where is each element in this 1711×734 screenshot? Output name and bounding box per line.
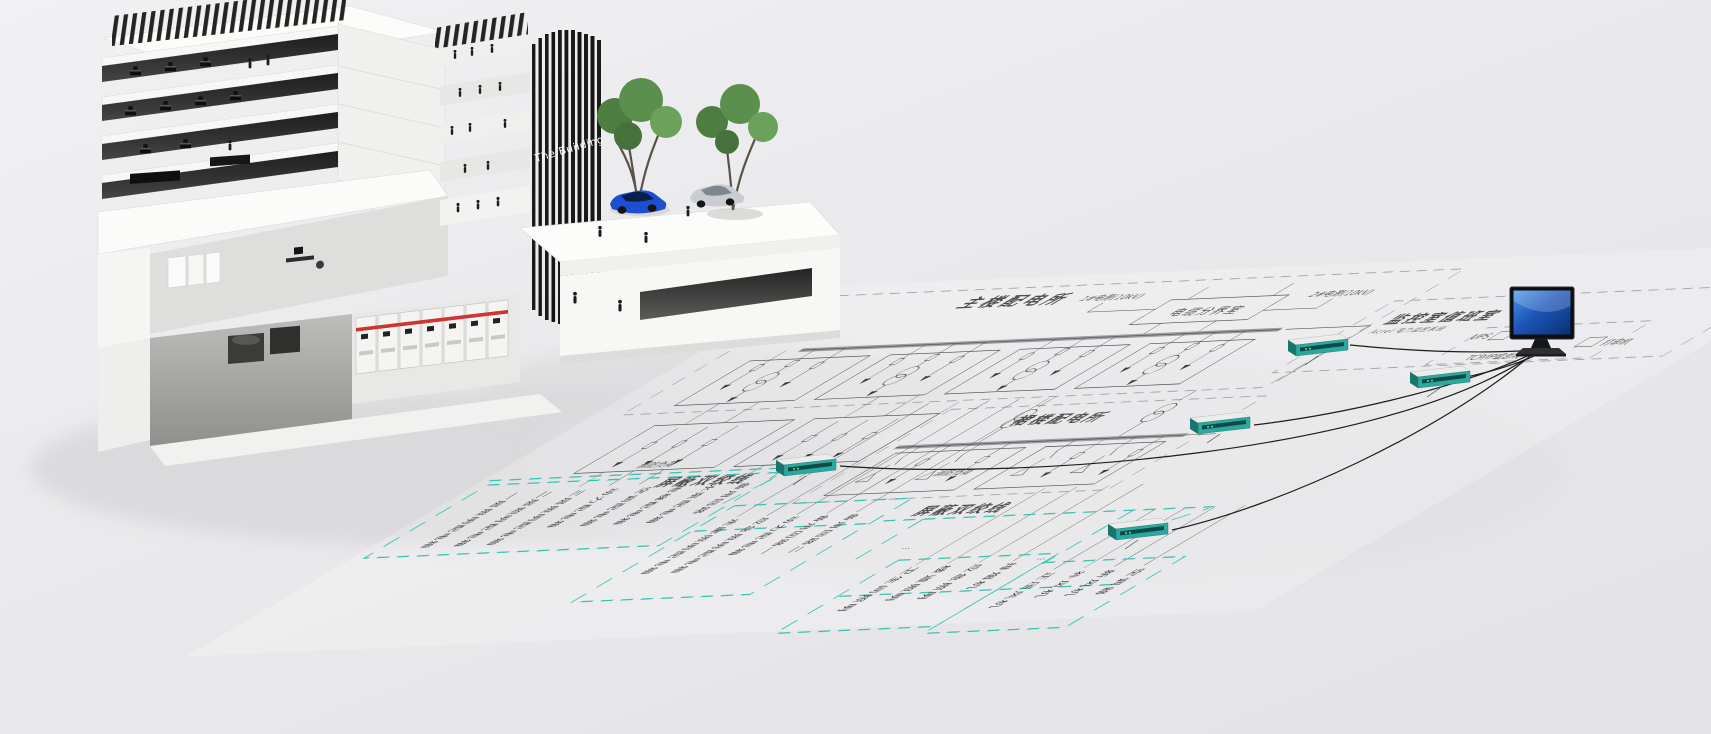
atrium-floors — [440, 34, 530, 226]
scene-svg: 主楼配电所 电缆分界室 1#电源(10kV) 2#电源(10kV) — [0, 0, 1711, 734]
scene-root: 主楼配电所 电缆分界室 1#电源(10kV) 2#电源(10kV) — [0, 0, 1711, 734]
trees — [597, 78, 778, 210]
podium — [520, 202, 840, 364]
car-blue — [610, 190, 666, 213]
tower-cutaway-floors — [102, 26, 338, 199]
building-sign: The Building — [533, 134, 606, 166]
monitor-base — [1516, 348, 1566, 354]
car-silver — [690, 184, 744, 207]
